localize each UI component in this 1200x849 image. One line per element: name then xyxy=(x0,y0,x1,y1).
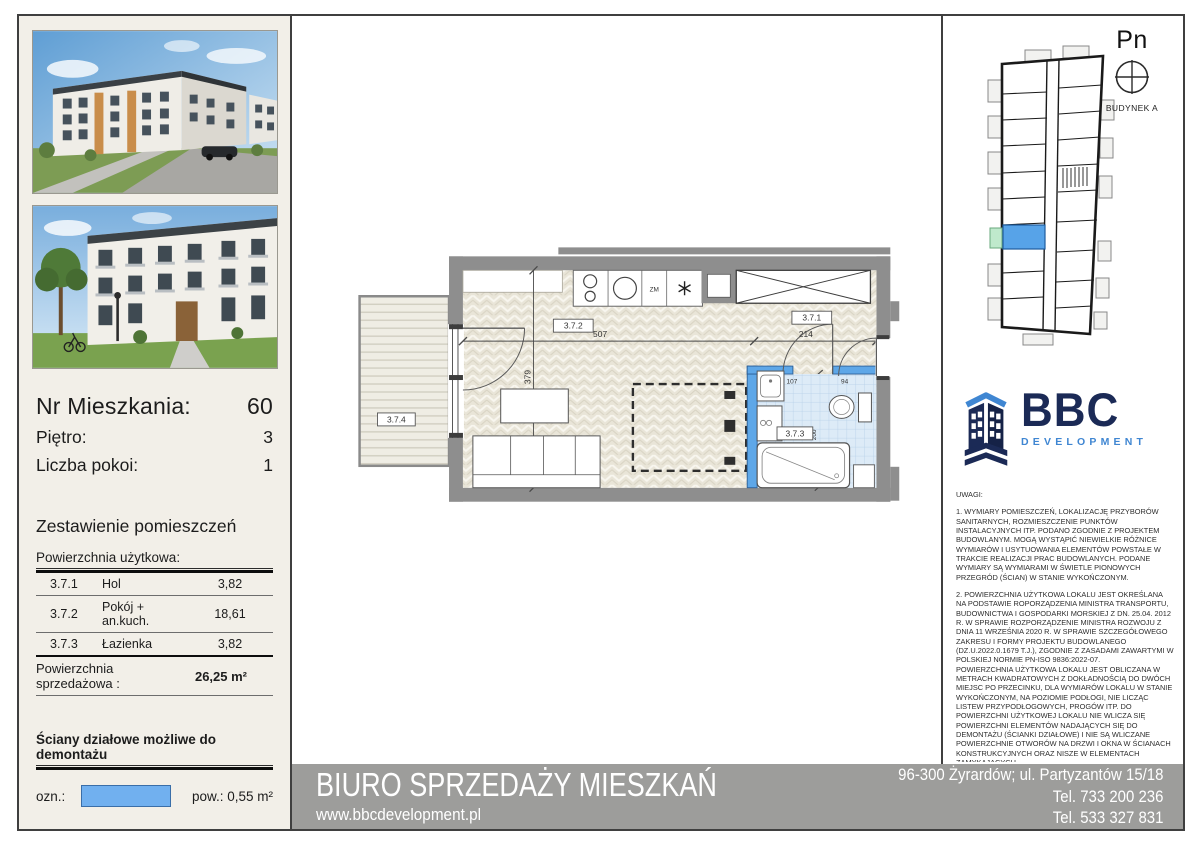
dim-hall-width: 214 xyxy=(799,329,813,339)
unit-number-row: Nr Mieszkania: 60 xyxy=(36,393,273,420)
table-row: 3.7.1 Hol 3,82 xyxy=(36,573,273,596)
phone-number-2: Tel. 533 327 831 xyxy=(898,807,1163,829)
rule-thick xyxy=(36,767,273,770)
floor-value: 3 xyxy=(263,427,273,448)
rule-thin xyxy=(36,695,273,696)
sink-icon xyxy=(614,277,637,299)
room-id: 3.7.3 xyxy=(36,637,102,651)
label-balcony: 3.7.4 xyxy=(387,414,406,424)
room-name: Łazienka xyxy=(102,637,187,651)
rooms-count-value: 1 xyxy=(263,455,273,476)
kitchen-counter-left xyxy=(463,270,562,292)
floor-plan-panel: ZM xyxy=(292,16,941,764)
bathroom-shaft xyxy=(854,465,875,488)
dim-living-width: 507 xyxy=(593,329,607,339)
rooms-count-label: Liczba pokoi: xyxy=(36,455,138,476)
legal-notes: UWAGI: 1. WYMIARY POMIESZCZEŃ, LOKALIZAC… xyxy=(956,490,1174,762)
rooms-table: 3.7.1 Hol 3,82 3.7.2 Pokój + an.kuch. 18… xyxy=(36,573,273,696)
coffee-table xyxy=(501,389,569,423)
logo-name: BBC xyxy=(1021,388,1147,433)
table-row: 3.7.2 Pokój + an.kuch. 18,61 xyxy=(36,596,273,633)
wardrobe xyxy=(736,270,870,303)
unit-number-value: 60 xyxy=(247,393,273,420)
room-id: 3.7.1 xyxy=(36,577,102,591)
note-paragraph-1: 1. WYMIARY POMIESZCZEŃ, LOKALIZACJĘ PRZY… xyxy=(956,507,1174,582)
demountable-legend-row: ozn.: pow.: 0,55 m² xyxy=(36,785,273,807)
right-panel: Pn BUDYNEK A xyxy=(941,16,1183,764)
footer-bar: BIURO SPRZEDAŻY MIESZKAŃ www.bbcdevelopm… xyxy=(292,764,1183,829)
demountable-wall-swatch xyxy=(81,785,171,807)
label-bath: 3.7.3 xyxy=(786,428,805,438)
room-name: Pokój + an.kuch. xyxy=(102,600,187,628)
building-render-photo-2 xyxy=(32,205,278,369)
sofa xyxy=(473,436,600,488)
developer-logo: BBC DEVELOPMENT xyxy=(957,388,1169,472)
label-living: 3.7.2 xyxy=(564,321,583,331)
rooms-count-row: Liczba pokoi: 1 xyxy=(36,455,273,476)
building-outline xyxy=(1002,56,1103,334)
compass-icon xyxy=(1112,57,1152,97)
total-area-label: Powierzchnia sprzedażowa : xyxy=(36,661,169,691)
floor-plan-drawing: ZM xyxy=(292,16,941,764)
dim-bath-a: 107 xyxy=(787,379,798,386)
label-hall: 3.7.1 xyxy=(802,313,821,323)
bathtub xyxy=(757,443,849,488)
room-area: 18,61 xyxy=(187,607,273,621)
note-paragraph-2: 2. POWIERZCHNIA UŻYTKOWA LOKALU JEST OKR… xyxy=(956,590,1174,665)
apartment-card-document: Nr Mieszkania: 60 Piętro: 3 Liczba pokoi… xyxy=(17,14,1185,831)
usable-area-header: Powierzchnia użytkowa: xyxy=(36,550,273,569)
compass-block: Pn BUDYNEK A xyxy=(1097,26,1167,113)
building-label: BUDYNEK A xyxy=(1097,103,1167,113)
notes-header: UWAGI: xyxy=(956,490,1174,499)
room-area: 3,82 xyxy=(187,637,273,651)
website-url: www.bbcdevelopment.pl xyxy=(316,805,756,825)
rooms-summary-title: Zestawienie pomieszczeń xyxy=(36,516,273,537)
total-area-row: Powierzchnia sprzedażowa : 26,25 m² xyxy=(36,657,273,695)
dim-bath-b: 94 xyxy=(841,379,849,386)
floor-label: Piętro: xyxy=(36,427,87,448)
room-id: 3.7.2 xyxy=(36,607,102,621)
demountable-walls-header: Ściany działowe możliwe do demontażu xyxy=(36,732,273,766)
office-address: 96-300 Żyrardów; ul. Partyzantów 15/18 xyxy=(898,764,1163,786)
bbc-logo-icon xyxy=(957,388,1015,472)
unit-number-label: Nr Mieszkania: xyxy=(36,393,191,420)
demountable-area-value: pow.: 0,55 m² xyxy=(192,789,273,804)
kitchen-counter: ZM xyxy=(573,270,702,306)
highlighted-unit xyxy=(1003,225,1045,249)
washbasin xyxy=(757,371,784,401)
shaft xyxy=(701,268,736,303)
main-column: ZM xyxy=(292,16,1183,829)
phone-number-1: Tel. 733 200 236 xyxy=(898,786,1163,808)
dishwasher-label: ZM xyxy=(650,286,659,293)
room-area: 3,82 xyxy=(187,577,273,591)
floor-row: Piętro: 3 xyxy=(36,427,273,448)
note-paragraph-2b: POWIERZCHNIA UŻYTKOWA LOKALU JEST OBLICZ… xyxy=(956,665,1174,762)
building-render-photo-1 xyxy=(32,30,278,194)
balcony-area xyxy=(360,296,449,466)
stairs-hatch xyxy=(1063,167,1087,188)
north-label: Pn xyxy=(1097,26,1167,55)
balcony-window xyxy=(448,324,464,438)
highlighted-unit-balcony xyxy=(990,228,1002,248)
logo-subtitle: DEVELOPMENT xyxy=(1021,436,1147,448)
dim-living-depth: 379 xyxy=(523,370,533,384)
room-name: Hol xyxy=(102,577,187,591)
ozn-label: ozn.: xyxy=(36,789,65,804)
left-info-panel: Nr Mieszkania: 60 Piętro: 3 Liczba pokoi… xyxy=(19,16,292,829)
table-row: 3.7.3 Łazienka 3,82 xyxy=(36,633,273,655)
sales-office-title: BIURO SPRZEDAŻY MIESZKAŃ xyxy=(316,768,717,803)
total-area-value: 26,25 m² xyxy=(169,669,273,684)
